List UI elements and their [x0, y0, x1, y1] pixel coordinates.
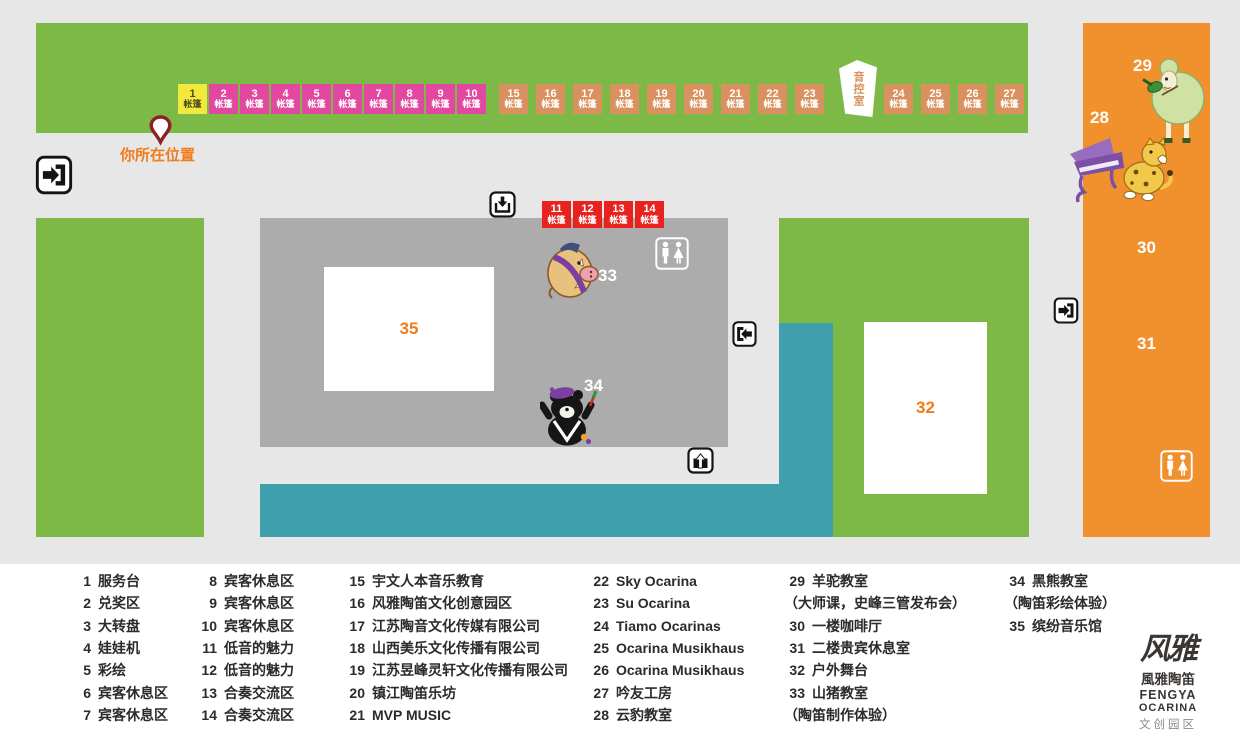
legend-item-3: 3大转盘 — [70, 615, 168, 637]
fengya-ocarina-logo: 风雅 風雅陶笛 FENGYA OCARINA 文创园区 — [1122, 634, 1214, 732]
tent-10: 10帐篷 — [457, 84, 486, 114]
legend-note: （陶笛彩绘体验） — [1004, 592, 1116, 614]
legend-column-3: 15宇文人本音乐教育16风雅陶笛文化创意园区17江苏陶音文化传媒有限公司18山西… — [344, 570, 568, 726]
legend-item-23: 23Su Ocarina — [588, 592, 744, 614]
logo-name-en-2: OCARINA — [1122, 702, 1214, 714]
legend-item-11: 11低音的魅力 — [196, 637, 294, 659]
tent-row-1-10: 1帐篷2帐篷3帐篷4帐篷5帐篷6帐篷7帐篷8帐篷9帐篷10帐篷 — [178, 84, 486, 114]
entrance-door-icon-left — [35, 155, 73, 195]
tent-4: 4帐篷 — [271, 84, 300, 114]
legend-item-19: 19江苏昱峰灵轩文化传播有限公司 — [344, 659, 568, 681]
tent-3: 3帐篷 — [240, 84, 269, 114]
legend-item-22: 22Sky Ocarina — [588, 570, 744, 592]
tent-8: 8帐篷 — [395, 84, 424, 114]
legend-column-4: 22Sky Ocarina23Su Ocarina24Tiamo Ocarina… — [588, 570, 744, 726]
door-exit-left-icon — [732, 320, 757, 348]
arrow-out-of-tray-icon — [687, 447, 714, 474]
tent-15: 15帐篷 — [499, 84, 528, 114]
tent-18: 18帐篷 — [610, 84, 639, 114]
block-32-outdoor-stage: 32 — [864, 322, 987, 494]
legend-item-14: 14合奏交流区 — [196, 704, 294, 726]
legend-item-28: 28云豹教室 — [588, 704, 744, 726]
area-number-32: 32 — [916, 398, 935, 418]
area-number-35: 35 — [400, 319, 419, 339]
legend-item-24: 24Tiamo Ocarinas — [588, 615, 744, 637]
legend-note: （陶笛制作体验） — [784, 704, 966, 726]
tent-12: 12帐篷 — [573, 201, 602, 228]
tent-16: 16帐篷 — [536, 84, 565, 114]
legend-item-35: 35缤纷音乐馆 — [1004, 615, 1116, 637]
tent-25: 25帐篷 — [921, 84, 950, 114]
restroom-icon-orange — [1160, 449, 1193, 483]
tent-1: 1帐篷 — [178, 84, 207, 114]
legend-item-21: 21MVP MUSIC — [344, 704, 568, 726]
tent-23: 23帐篷 — [795, 84, 824, 114]
tent-24: 24帐篷 — [884, 84, 913, 114]
legend-item-12: 12低音的魅力 — [196, 659, 294, 681]
tent-5: 5帐篷 — [302, 84, 331, 114]
tent-14: 14帐篷 — [635, 201, 664, 228]
teal-walkway-vertical — [779, 323, 833, 537]
area-number-30: 30 — [1137, 238, 1156, 258]
tent-22: 22帐篷 — [758, 84, 787, 114]
legend-item-15: 15宇文人本音乐教育 — [344, 570, 568, 592]
area-number-31: 31 — [1137, 334, 1156, 354]
legend-item-27: 27吟友工房 — [588, 681, 744, 703]
legend-column-6: 34黑熊教室（陶笛彩绘体验）35缤纷音乐馆 — [1004, 570, 1116, 637]
tent-27: 27帐篷 — [995, 84, 1024, 114]
green-area-left — [36, 218, 204, 537]
legend-item-17: 17江苏陶音文化传媒有限公司 — [344, 615, 568, 637]
tent-11: 11帐篷 — [542, 201, 571, 228]
tent-13: 13帐篷 — [604, 201, 633, 228]
tent-2: 2帐篷 — [209, 84, 238, 114]
tent-21: 21帐篷 — [721, 84, 750, 114]
tent-7: 7帐篷 — [364, 84, 393, 114]
logo-mark: 风雅 — [1122, 634, 1214, 666]
restroom-icon-building — [655, 237, 689, 270]
sound-control-room: 音控室 — [839, 60, 877, 117]
logo-name-cn: 風雅陶笛 — [1122, 668, 1214, 688]
legend-item-30: 30一楼咖啡厅 — [784, 615, 966, 637]
sound-control-room-label: 音控室 — [850, 71, 866, 107]
tent-row-15-23: 15帐篷16帐篷17帐篷18帐篷19帐篷20帐篷21帐篷22帐篷23帐篷 — [499, 84, 824, 114]
tent-row-24-27: 24帐篷25帐篷26帐篷27帐篷 — [884, 84, 1024, 114]
legend-item-10: 10宾客休息区 — [196, 615, 294, 637]
legend-item-7: 7宾客休息区 — [70, 704, 168, 726]
legend-item-6: 6宾客休息区 — [70, 681, 168, 703]
your-location-label: 你所在位置 — [120, 144, 195, 165]
area-number-28: 28 — [1090, 108, 1109, 128]
legend-item-1: 1服务台 — [70, 570, 168, 592]
legend-item-26: 26Ocarina Musikhaus — [588, 659, 744, 681]
tent-6: 6帐篷 — [333, 84, 362, 114]
area-number-29: 29 — [1133, 56, 1152, 76]
legend-item-5: 5彩绘 — [70, 659, 168, 681]
arrow-into-tray-icon — [489, 191, 516, 218]
legend-item-29: 29羊驼教室 — [784, 570, 966, 592]
legend-item-31: 31二楼贵宾休息室 — [784, 637, 966, 659]
legend-item-13: 13合奏交流区 — [196, 681, 294, 703]
legend-item-18: 18山西美乐文化传播有限公司 — [344, 637, 568, 659]
legend-note: （大师课，史峰三管发布会） — [784, 592, 966, 614]
legend-item-8: 8宾客休息区 — [196, 570, 294, 592]
tent-9: 9帐篷 — [426, 84, 455, 114]
legend-column-2: 8宾客休息区9宾客休息区10宾客休息区11低音的魅力12低音的魅力13合奏交流区… — [196, 570, 294, 726]
tent-20: 20帐篷 — [684, 84, 713, 114]
logo-subtitle: 文创园区 — [1122, 716, 1214, 732]
legend-item-16: 16风雅陶笛文化创意园区 — [344, 592, 568, 614]
teal-walkway-horizontal — [260, 484, 833, 537]
legend-item-25: 25Ocarina Musikhaus — [588, 637, 744, 659]
green-area-top — [36, 23, 1028, 133]
legend-panel: 1服务台2兑奖区3大转盘4娃娃机5彩绘6宾客休息区7宾客休息区 8宾客休息区9宾… — [0, 564, 1240, 741]
legend-item-33: 33山猪教室 — [784, 681, 966, 703]
area-number-34: 34 — [584, 376, 603, 396]
venue-map: 35 32 1帐篷2帐篷3帐篷4帐篷5帐篷6帐篷7帐篷8帐篷9帐篷10帐篷 15… — [0, 0, 1240, 741]
legend-item-34: 34黑熊教室 — [1004, 570, 1116, 592]
location-pin-icon — [149, 115, 172, 147]
block-35-music-hall: 35 — [324, 267, 494, 391]
tent-26: 26帐篷 — [958, 84, 987, 114]
legend-column-5: 29羊驼教室（大师课，史峰三管发布会）30一楼咖啡厅31二楼贵宾休息室32户外舞… — [784, 570, 966, 726]
legend-item-9: 9宾客休息区 — [196, 592, 294, 614]
area-number-33: 33 — [598, 266, 617, 286]
boar-character-icon — [544, 236, 604, 302]
legend-item-32: 32户外舞台 — [784, 659, 966, 681]
legend-item-2: 2兑奖区 — [70, 592, 168, 614]
legend-item-4: 4娃娃机 — [70, 637, 168, 659]
legend-column-1: 1服务台2兑奖区3大转盘4娃娃机5彩绘6宾客休息区7宾客休息区 — [70, 570, 168, 726]
tent-row-11-14: 11帐篷12帐篷13帐篷14帐篷 — [542, 201, 664, 228]
legend-item-20: 20镇江陶笛乐坊 — [344, 681, 568, 703]
tent-17: 17帐篷 — [573, 84, 602, 114]
logo-name-en-1: FENGYA — [1122, 688, 1214, 702]
entrance-door-icon-right — [1053, 297, 1079, 324]
tent-19: 19帐篷 — [647, 84, 676, 114]
